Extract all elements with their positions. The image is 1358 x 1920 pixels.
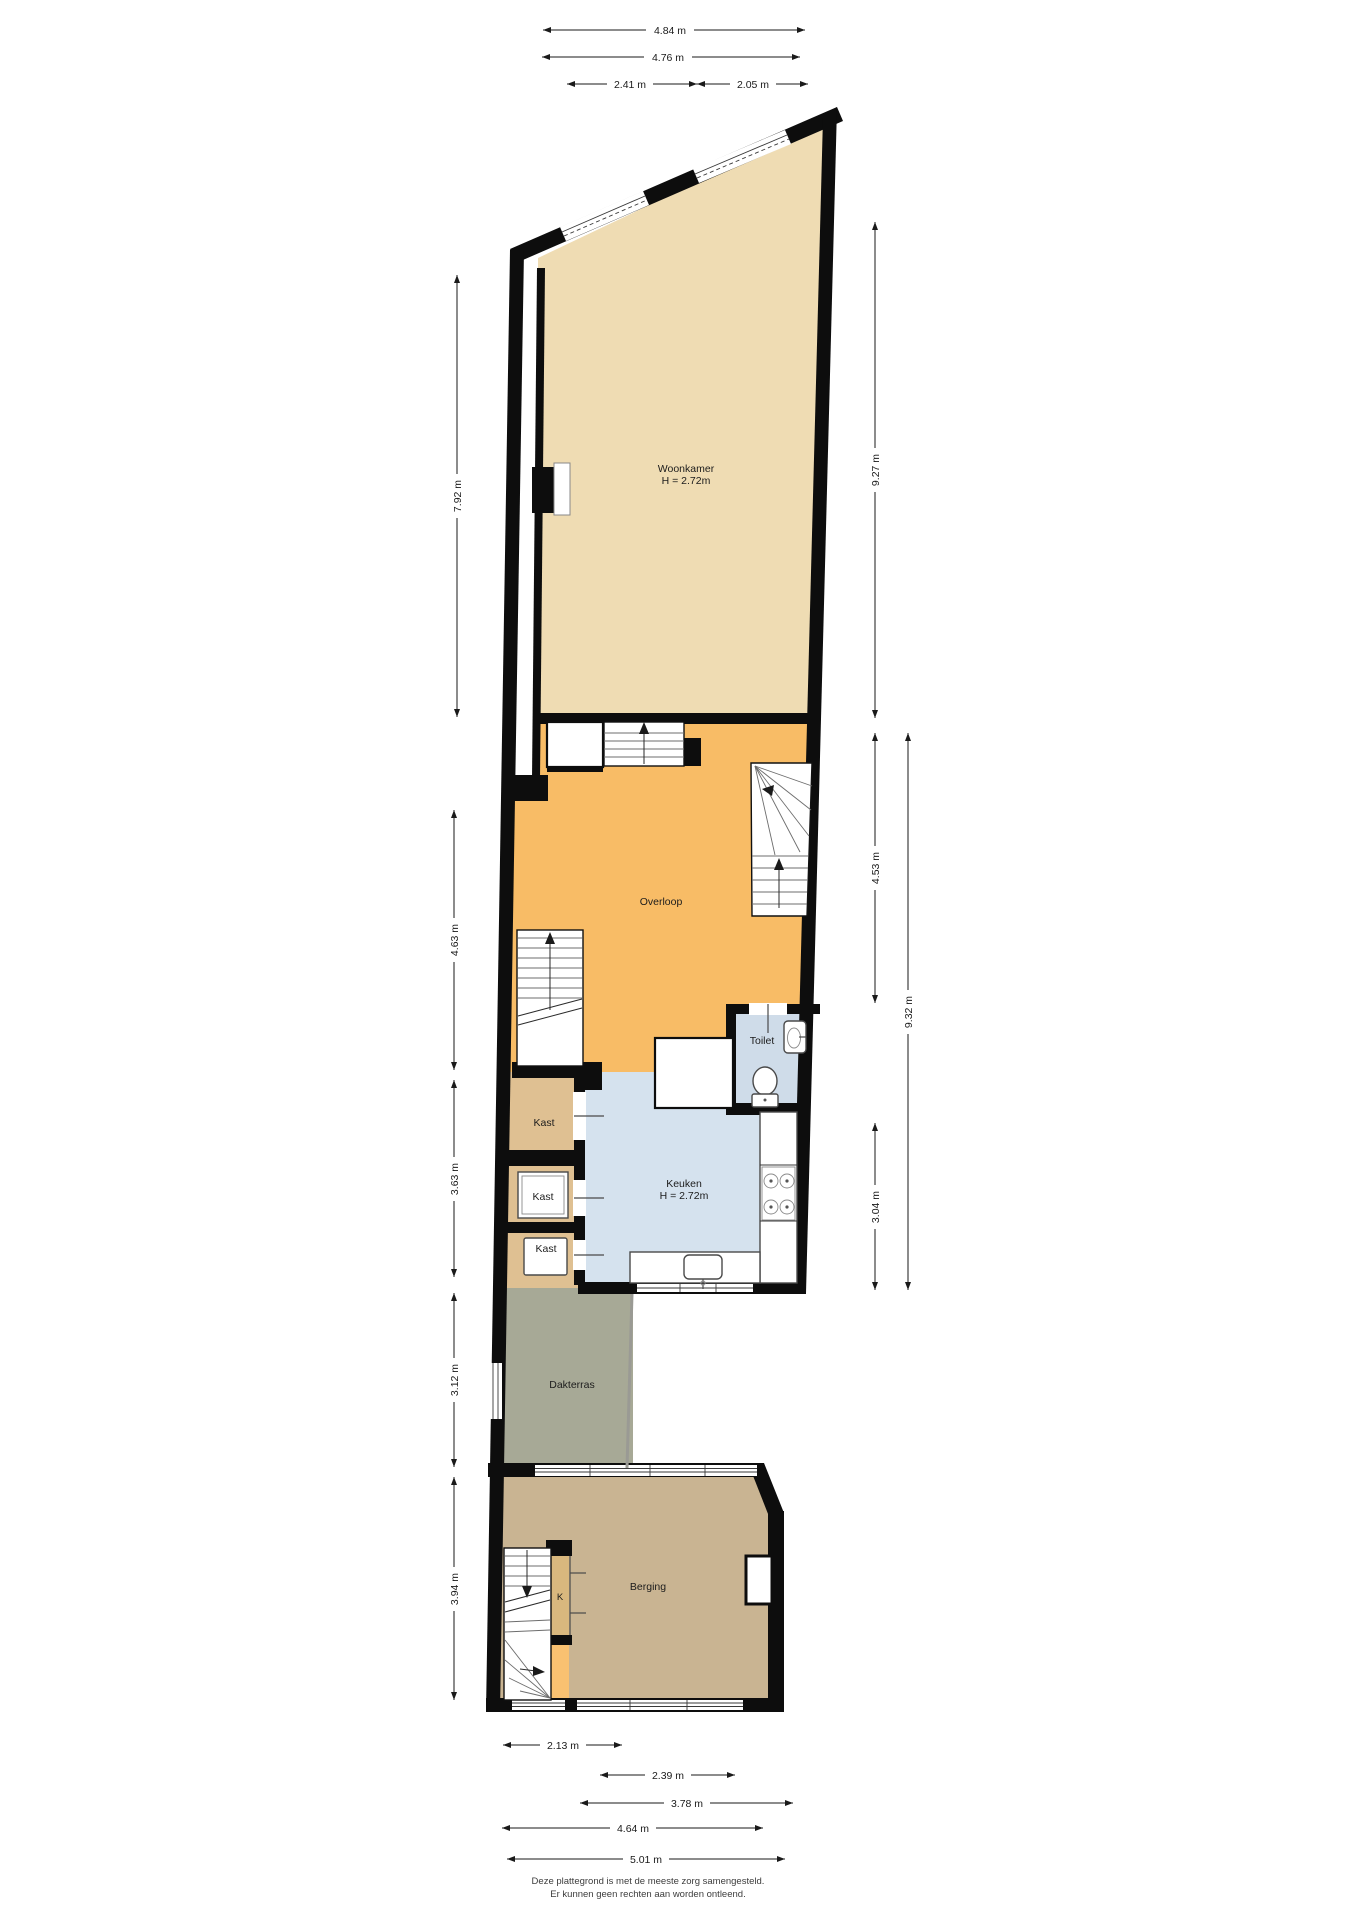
dim-left-2-label: 4.63 m bbox=[449, 924, 461, 956]
dakterras-label: Dakterras bbox=[549, 1379, 595, 1391]
wall-kast-separator-2 bbox=[503, 1222, 585, 1233]
dim-bottom-1-label: 2.13 m bbox=[547, 1740, 579, 1752]
toilet-icon bbox=[752, 1067, 778, 1107]
wall-cavity-end bbox=[503, 775, 548, 801]
dim-top-1-label: 4.84 m bbox=[654, 25, 686, 37]
keuken-label: Keuken bbox=[666, 1178, 702, 1190]
kast-k-label: K bbox=[557, 1592, 564, 1603]
wall-stair-corner bbox=[683, 738, 701, 766]
kast3-label: Kast bbox=[535, 1243, 556, 1255]
footer-line-1: Deze plattegrond is met de meeste zorg s… bbox=[532, 1876, 765, 1887]
berging-bottom-window bbox=[512, 1700, 743, 1710]
toilet-label: Toilet bbox=[750, 1035, 775, 1047]
wall-kast-separator-1 bbox=[503, 1150, 585, 1166]
dim-right-1-label: 9.27 m bbox=[870, 454, 882, 486]
kast2-label: Kast bbox=[532, 1191, 553, 1203]
stairs-berging bbox=[504, 1548, 551, 1700]
wall-chimney-breast bbox=[532, 467, 556, 513]
floorplan-drawing: Woonkamer H = 2.72m Overloop Toilet Keuk… bbox=[0, 0, 1358, 1920]
dim-bottom-5-label: 5.01 m bbox=[630, 1854, 662, 1866]
dim-top-2-label: 4.76 m bbox=[652, 52, 684, 64]
berging-niche bbox=[746, 1556, 772, 1604]
dim-bottom-2-label: 2.39 m bbox=[652, 1770, 684, 1782]
woonkamer-label: Woonkamer bbox=[658, 463, 715, 475]
floorplan-page: Woonkamer H = 2.72m Overloop Toilet Keuk… bbox=[0, 0, 1358, 1920]
dim-left-3-label: 3.63 m bbox=[449, 1163, 461, 1195]
dim-right-3-label: 9.32 m bbox=[903, 996, 915, 1028]
woonkamer-height-label: H = 2.72m bbox=[662, 475, 711, 487]
dim-left-4-label: 3.12 m bbox=[449, 1364, 461, 1396]
footer-line-2: Er kunnen geen rechten aan worden ontlee… bbox=[550, 1889, 745, 1900]
washbasin-icon bbox=[784, 1021, 806, 1053]
stairs-woonkamer-overloop bbox=[547, 722, 684, 767]
window-sill-left bbox=[554, 463, 570, 515]
wall-berging-right bbox=[768, 1511, 784, 1712]
dim-right-4-label: 3.04 m bbox=[870, 1191, 882, 1223]
dakterras-left-window bbox=[489, 1363, 502, 1419]
dim-top-3-label: 2.41 m bbox=[614, 79, 646, 91]
stairs-overloop-left bbox=[517, 930, 583, 1066]
dim-bottom-4-label: 4.64 m bbox=[617, 1823, 649, 1835]
closet-box bbox=[547, 722, 603, 767]
dim-right-2-label: 4.53 m bbox=[870, 852, 882, 884]
dim-bottom-3-label: 3.78 m bbox=[671, 1798, 703, 1810]
berging-top-window bbox=[535, 1465, 757, 1476]
kitchen-counter-right bbox=[760, 1112, 797, 1283]
kast1-room bbox=[504, 1072, 582, 1156]
hall-closet-box bbox=[655, 1038, 733, 1108]
stair-landing-strip bbox=[549, 1640, 569, 1700]
keuken-height-label: H = 2.72m bbox=[660, 1190, 709, 1202]
window-mullion bbox=[565, 1699, 577, 1711]
dim-left-1-label: 7.92 m bbox=[452, 480, 464, 512]
berging-label: Berging bbox=[630, 1581, 666, 1593]
dim-top-4-label: 2.05 m bbox=[737, 79, 769, 91]
dim-left-5-label: 3.94 m bbox=[449, 1573, 461, 1605]
stairs-spiral-overloop bbox=[751, 763, 812, 916]
kast1-label: Kast bbox=[533, 1117, 554, 1129]
overloop-label: Overloop bbox=[640, 896, 683, 908]
spiral-stairs-icon bbox=[751, 763, 812, 916]
